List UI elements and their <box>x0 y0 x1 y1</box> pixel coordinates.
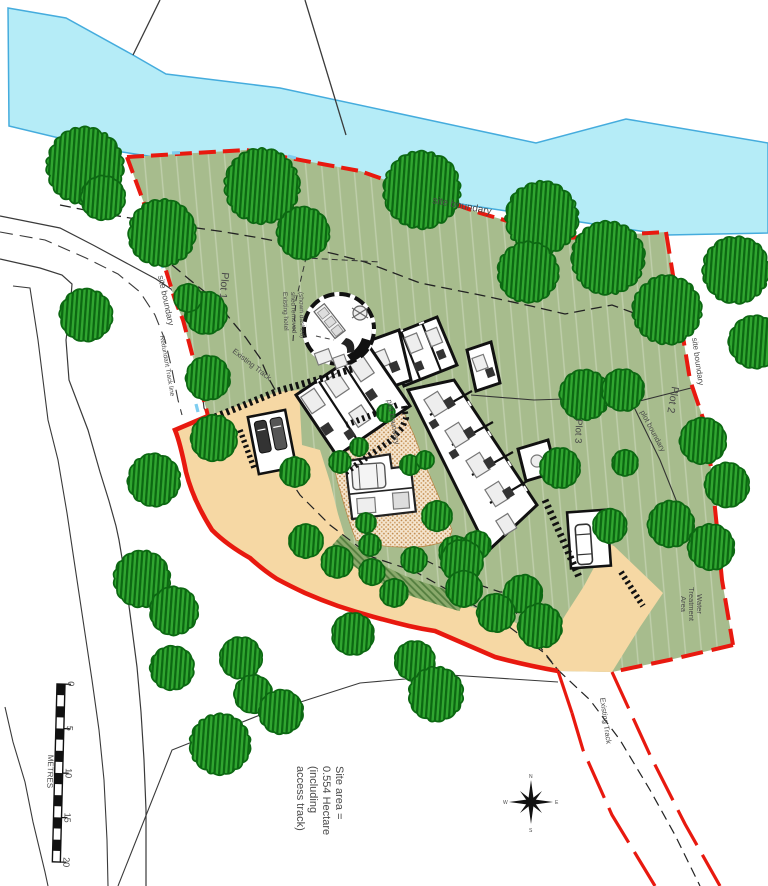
svg-text:METRES: METRES <box>45 755 55 789</box>
svg-text:Area: Area <box>679 596 688 613</box>
svg-text:(including: (including <box>307 766 319 813</box>
svg-text:20: 20 <box>61 857 71 867</box>
svg-text:15: 15 <box>62 813 72 823</box>
svg-text:shed removed: shed removed <box>289 292 297 334</box>
svg-text:Site area =: Site area = <box>333 766 345 820</box>
svg-text:0: 0 <box>66 681 76 686</box>
svg-text:N: N <box>529 774 533 780</box>
svg-text:Plot 1: Plot 1 <box>217 272 231 300</box>
svg-text:Existing hotel: Existing hotel <box>281 292 289 331</box>
svg-text:access track): access track) <box>294 766 306 831</box>
svg-text:10: 10 <box>64 768 74 778</box>
svg-text:W: W <box>503 800 508 806</box>
svg-text:0.554 Hectare: 0.554 Hectare <box>320 766 332 835</box>
svg-text:5: 5 <box>65 726 75 731</box>
svg-text:Plot 3: Plot 3 <box>572 419 584 444</box>
